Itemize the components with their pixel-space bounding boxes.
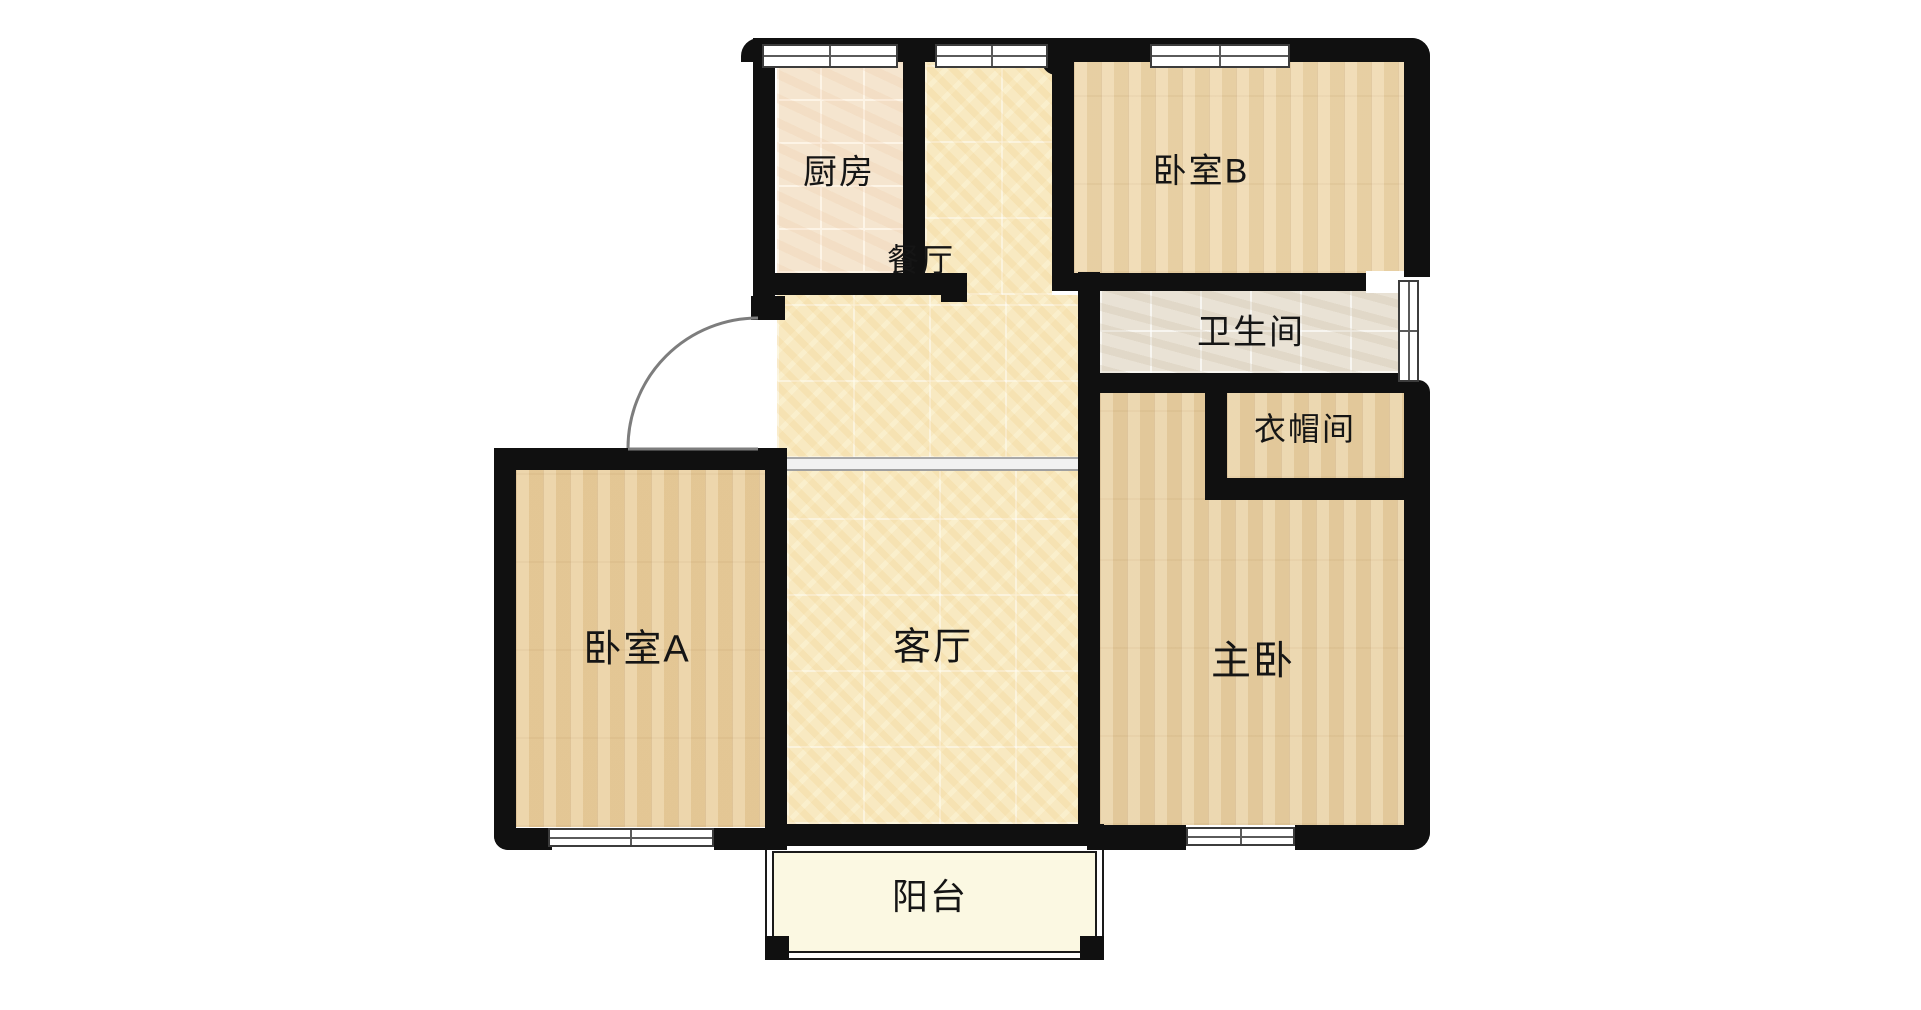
balcony-corner-right	[1080, 936, 1104, 960]
window-divider	[630, 830, 632, 845]
master-bedroom-window	[1186, 827, 1295, 846]
bathroom-label: 卫生间	[1197, 305, 1305, 354]
dining-window	[935, 44, 1048, 68]
window-divider	[1219, 46, 1221, 66]
window-divider	[829, 46, 831, 66]
wall-bathroom-bottom	[1078, 373, 1410, 393]
kitchen-window	[762, 44, 898, 68]
wall-cloakroom-bottom	[1205, 478, 1430, 500]
master-bedroom-label: 主卧	[1211, 628, 1295, 686]
cloakroom-label: 衣帽间	[1254, 404, 1356, 450]
wall-entry-jamb	[751, 296, 785, 320]
bedroom-a-label: 卧室A	[583, 618, 690, 673]
wall-right-outer-lower	[1404, 380, 1430, 850]
window-divider	[1400, 330, 1417, 332]
window-divider	[991, 46, 993, 66]
wall-bedroom-a-right	[765, 448, 787, 850]
bedroom-b-label: 卧室B	[1153, 144, 1250, 193]
dining-living-divider	[787, 457, 1078, 471]
room-dining-floor	[777, 295, 1078, 458]
wall-central	[1078, 272, 1100, 844]
balcony-label: 阳台	[892, 868, 968, 920]
wall-master-bottom-right	[1295, 825, 1430, 850]
floorplan-canvas: 厨房 餐厅 卧室B 卫生间 衣帽间 主卧 卧室A 客厅 阳台	[0, 0, 1921, 1010]
hall-passage-floor	[1100, 393, 1205, 500]
wall-bedroom-a-top	[494, 448, 775, 470]
wall-bedroom-a-left	[494, 448, 516, 850]
dining-label: 餐厅	[887, 235, 955, 281]
bathroom-window	[1398, 280, 1419, 382]
bedroom-b-window	[1150, 44, 1290, 68]
wall-bedroom-a-bottom-left	[494, 828, 552, 850]
living-room-label: 客厅	[893, 616, 973, 671]
wall-living-bottom	[765, 824, 1104, 846]
balcony-corner-left	[765, 936, 789, 960]
wall-bedroom-b-left	[1052, 38, 1074, 291]
bedroom-a-window	[548, 828, 714, 847]
kitchen-label: 厨房	[803, 145, 875, 194]
window-divider	[1240, 829, 1242, 844]
wall-right-outer-upper	[1404, 38, 1430, 277]
wall-master-bottom-left	[1087, 825, 1186, 850]
